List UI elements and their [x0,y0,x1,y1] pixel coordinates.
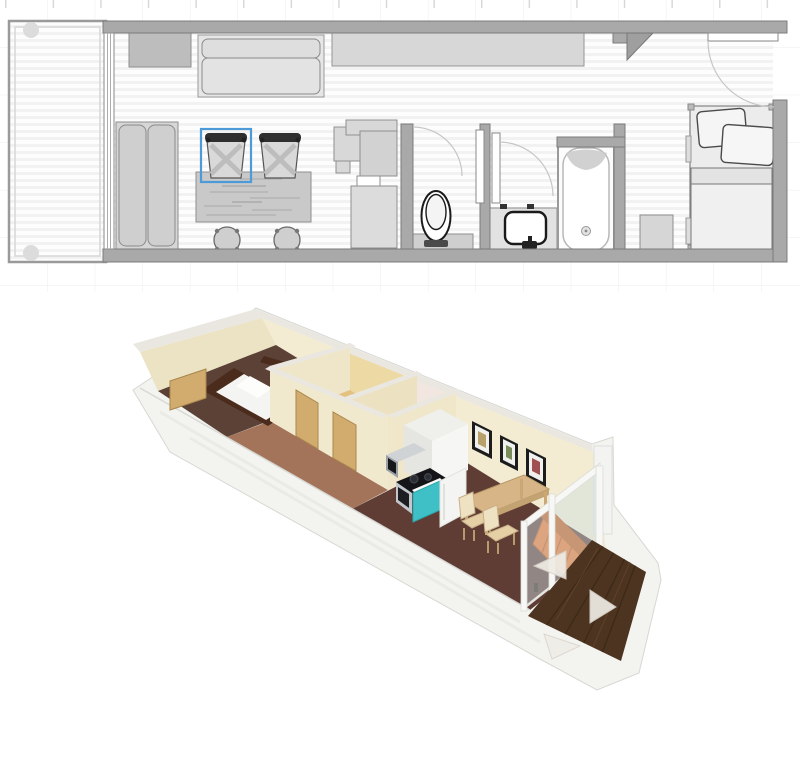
wall-bottom[interactable] [103,249,787,262]
floor-plan-2d [0,0,800,292]
glass-post [521,521,527,611]
sink-vanity-2d[interactable] [488,204,557,249]
tv-cabinet[interactable] [129,33,191,67]
blanket-fold [691,168,772,184]
pillow [721,124,776,166]
bed-2d[interactable] [686,104,775,251]
scene [0,0,800,765]
ruler-ticks [0,0,800,8]
pocket-door[interactable] [476,130,484,203]
dining-table-2d[interactable] [196,172,311,222]
dining-chair[interactable] [259,133,301,178]
deck-2d[interactable] [9,21,106,262]
wall-tub-alcove[interactable] [557,137,625,147]
deck-post [23,22,39,38]
bathtub-2d[interactable] [558,142,614,257]
deck-floor [9,21,106,262]
glass-post [596,466,603,552]
pocket-door[interactable] [492,133,500,203]
wall-stub[interactable] [613,33,627,43]
wall-wc-left[interactable] [401,124,413,249]
deck-post [23,245,39,261]
sofa-2d[interactable] [116,122,178,249]
view-3d [133,308,661,690]
wall-top[interactable] [103,21,787,33]
wall-right[interactable] [773,100,787,262]
nightstand-2d[interactable] [640,215,673,250]
daybed-sofa[interactable] [198,35,324,97]
glass-post [549,494,555,590]
glass-sliding-door-2d[interactable] [104,33,114,249]
wall-wardrobe[interactable] [332,33,584,66]
